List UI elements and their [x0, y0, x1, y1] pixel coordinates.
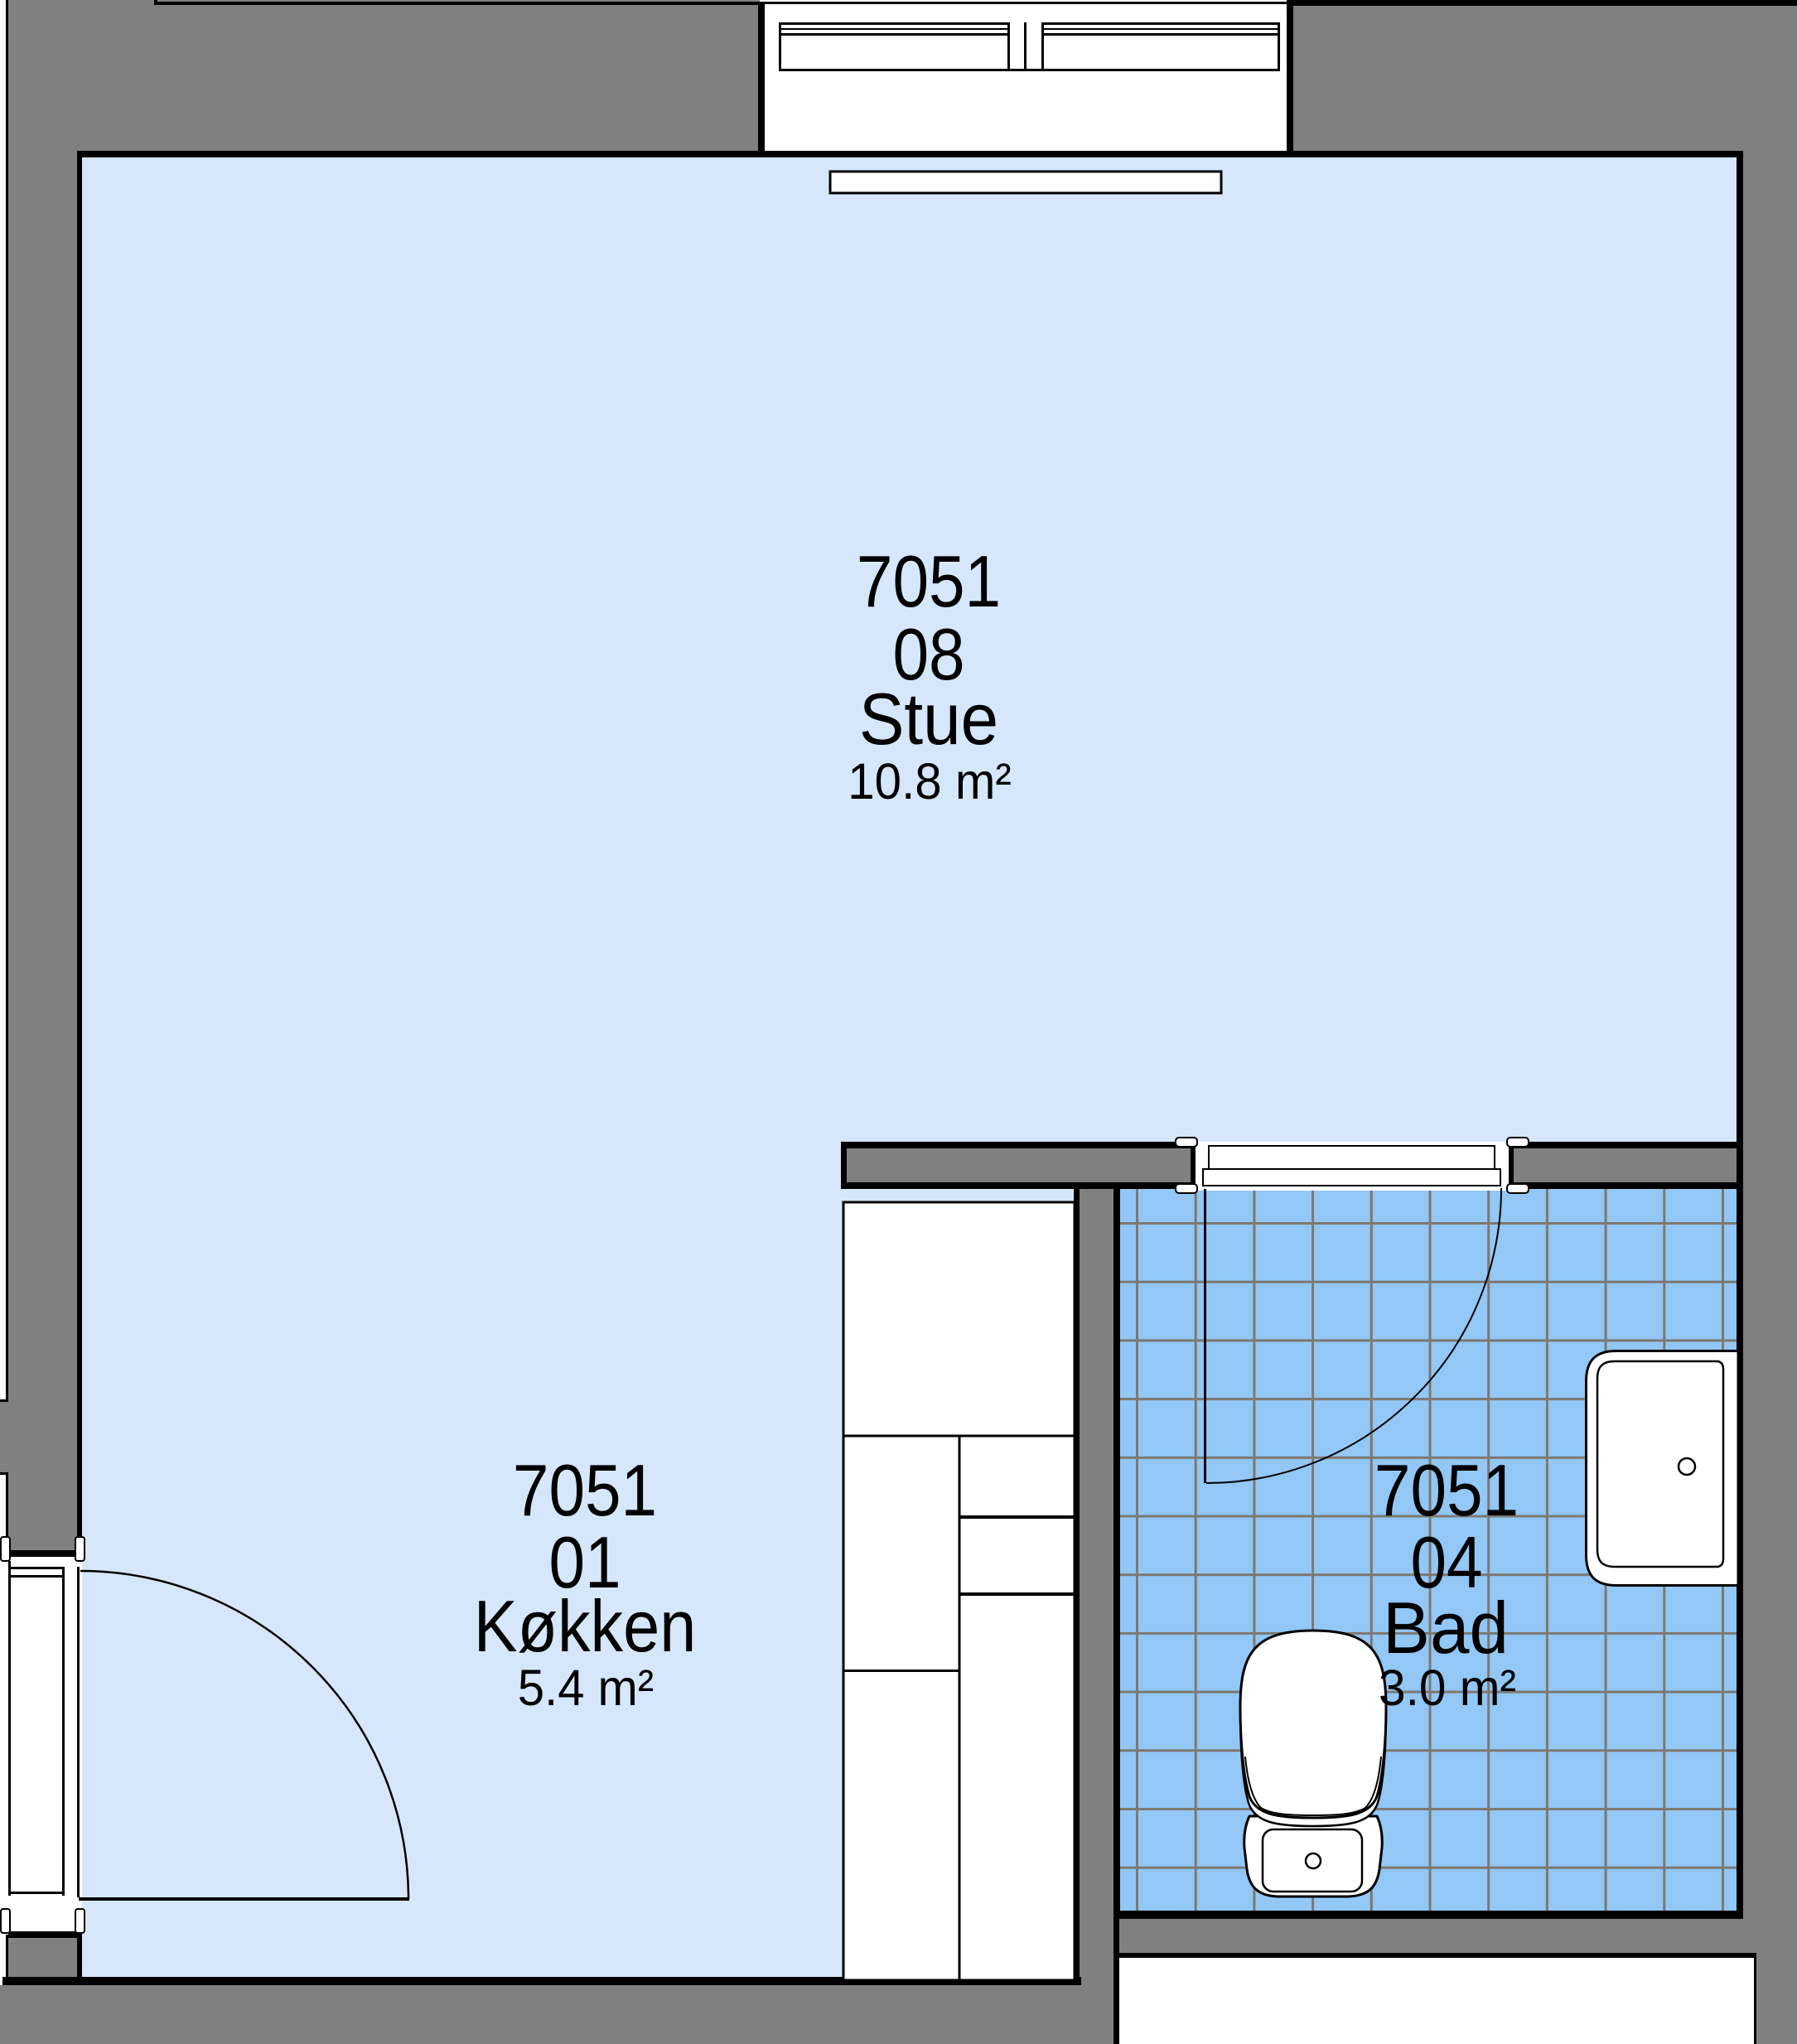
svg-text:Stue: Stue [859, 679, 998, 760]
svg-text:10.8 m²: 10.8 m² [848, 753, 1011, 810]
svg-text:Køkken: Køkken [474, 1585, 696, 1667]
svg-text:7051: 7051 [513, 1450, 657, 1531]
svg-text:3.0 m²: 3.0 m² [1379, 1660, 1516, 1716]
svg-text:7051: 7051 [1374, 1450, 1519, 1531]
svg-text:7051: 7051 [857, 541, 1001, 622]
svg-text:5.4 m²: 5.4 m² [518, 1660, 654, 1717]
svg-text:Bad: Bad [1383, 1588, 1509, 1669]
